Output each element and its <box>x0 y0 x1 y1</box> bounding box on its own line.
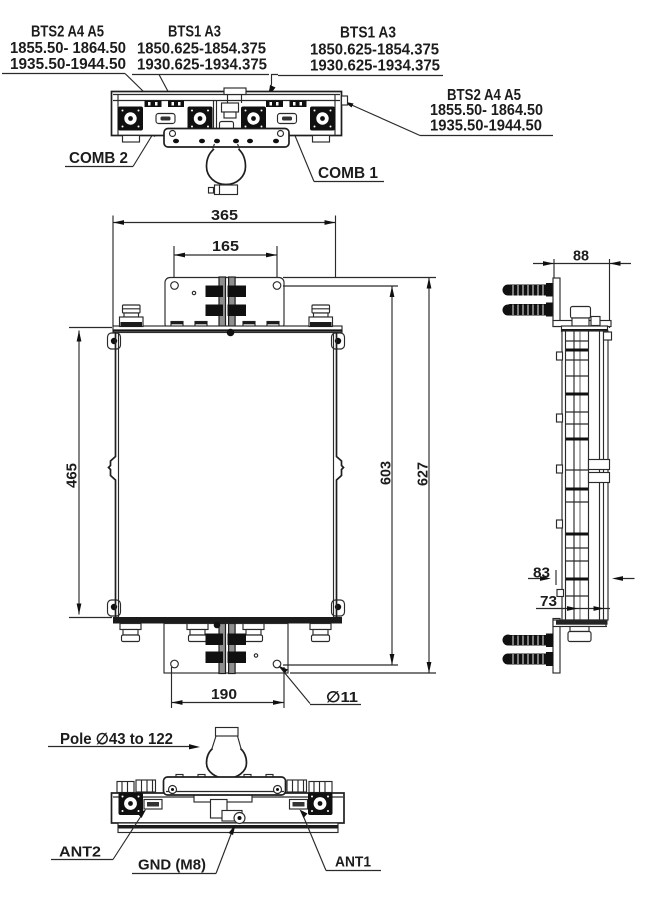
svg-text:627: 627 <box>415 462 432 486</box>
svg-text:ANT1: ANT1 <box>335 854 371 871</box>
svg-text:ANT2: ANT2 <box>59 844 101 861</box>
svg-text:365: 365 <box>211 207 238 224</box>
svg-text:BTS1 A3: BTS1 A3 <box>168 24 221 41</box>
svg-text:1935.50-1944.50: 1935.50-1944.50 <box>430 118 542 135</box>
svg-text:∅11: ∅11 <box>326 689 358 706</box>
svg-text:88: 88 <box>573 248 589 265</box>
svg-text:COMB 1: COMB 1 <box>318 165 378 182</box>
svg-text:COMB 2: COMB 2 <box>69 150 128 167</box>
svg-text:1930.625-1934.375: 1930.625-1934.375 <box>137 57 267 74</box>
svg-text:1935.50-1944.50: 1935.50-1944.50 <box>10 56 126 73</box>
svg-text:BTS1 A3: BTS1 A3 <box>340 25 396 42</box>
svg-text:603: 603 <box>378 461 395 485</box>
svg-text:1850.625-1854.375: 1850.625-1854.375 <box>137 41 266 58</box>
svg-text:1855.50- 1864.50: 1855.50- 1864.50 <box>430 102 543 119</box>
svg-text:BTS2 A4 A5: BTS2 A4 A5 <box>31 24 104 41</box>
svg-text:165: 165 <box>212 238 239 255</box>
svg-text:Pole ∅43 to 122: Pole ∅43 to 122 <box>60 731 173 748</box>
svg-text:465: 465 <box>64 463 81 488</box>
svg-text:190: 190 <box>211 686 237 703</box>
svg-text:1930.625-1934.375: 1930.625-1934.375 <box>310 58 440 75</box>
svg-text:GND (M8): GND (M8) <box>138 857 206 874</box>
svg-text:1855.50- 1864.50: 1855.50- 1864.50 <box>10 40 126 57</box>
svg-text:73: 73 <box>540 593 557 610</box>
svg-text:1850.625-1854.375: 1850.625-1854.375 <box>310 42 439 59</box>
